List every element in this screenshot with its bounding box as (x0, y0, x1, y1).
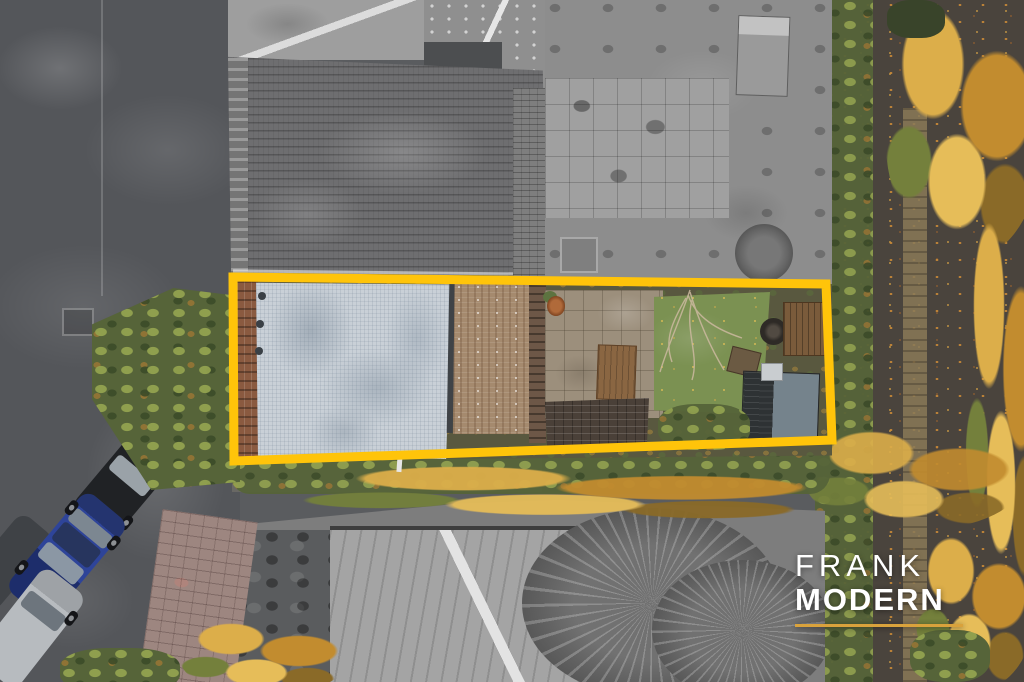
neighbor-roof-wing (228, 0, 426, 60)
plot-brick-gable-edge (237, 281, 258, 461)
dark-bush (887, 0, 945, 38)
neighbor-garden-grayscale (545, 0, 832, 284)
watermark-line2: MODERN (795, 584, 975, 615)
watermark-underline (795, 624, 963, 627)
plot-shed (741, 371, 820, 442)
rear-leaf-path (300, 460, 845, 522)
bottom-bush (910, 630, 990, 682)
road-curb-line (101, 0, 103, 296)
verge-tuft (60, 648, 180, 682)
roof-vent (255, 347, 263, 355)
neighbor-round-tree (735, 224, 793, 282)
plant-pot (547, 296, 565, 316)
roof-vent (256, 320, 264, 328)
plot-brick-strip (529, 285, 546, 443)
brick-path-grayscale (513, 88, 545, 284)
roof-gable-ridge (228, 58, 248, 278)
wooden-planter (783, 302, 829, 356)
plot-rear-wall (545, 398, 649, 446)
storage-box (761, 363, 783, 381)
plot-tiled-roof (453, 282, 531, 434)
car-silver-windshield (19, 590, 66, 633)
watermark-line1: FRANK (795, 550, 975, 581)
plot-bushes (658, 404, 750, 450)
neighbor-tiled-roof (228, 50, 546, 278)
roof-vent (258, 292, 266, 300)
neighbor-shed (736, 15, 791, 97)
road-drain-cover (62, 308, 94, 336)
neighbor-shed-roof (739, 16, 790, 36)
plot-flat-roof (256, 281, 452, 459)
watermark-frank-modern: FRANK MODERN (795, 550, 975, 627)
neighbor-garden-table (560, 237, 598, 273)
aerial-property-photo: FRANK MODERN (0, 0, 1024, 682)
neighbor-patio (545, 78, 729, 218)
garden-table (596, 344, 637, 400)
